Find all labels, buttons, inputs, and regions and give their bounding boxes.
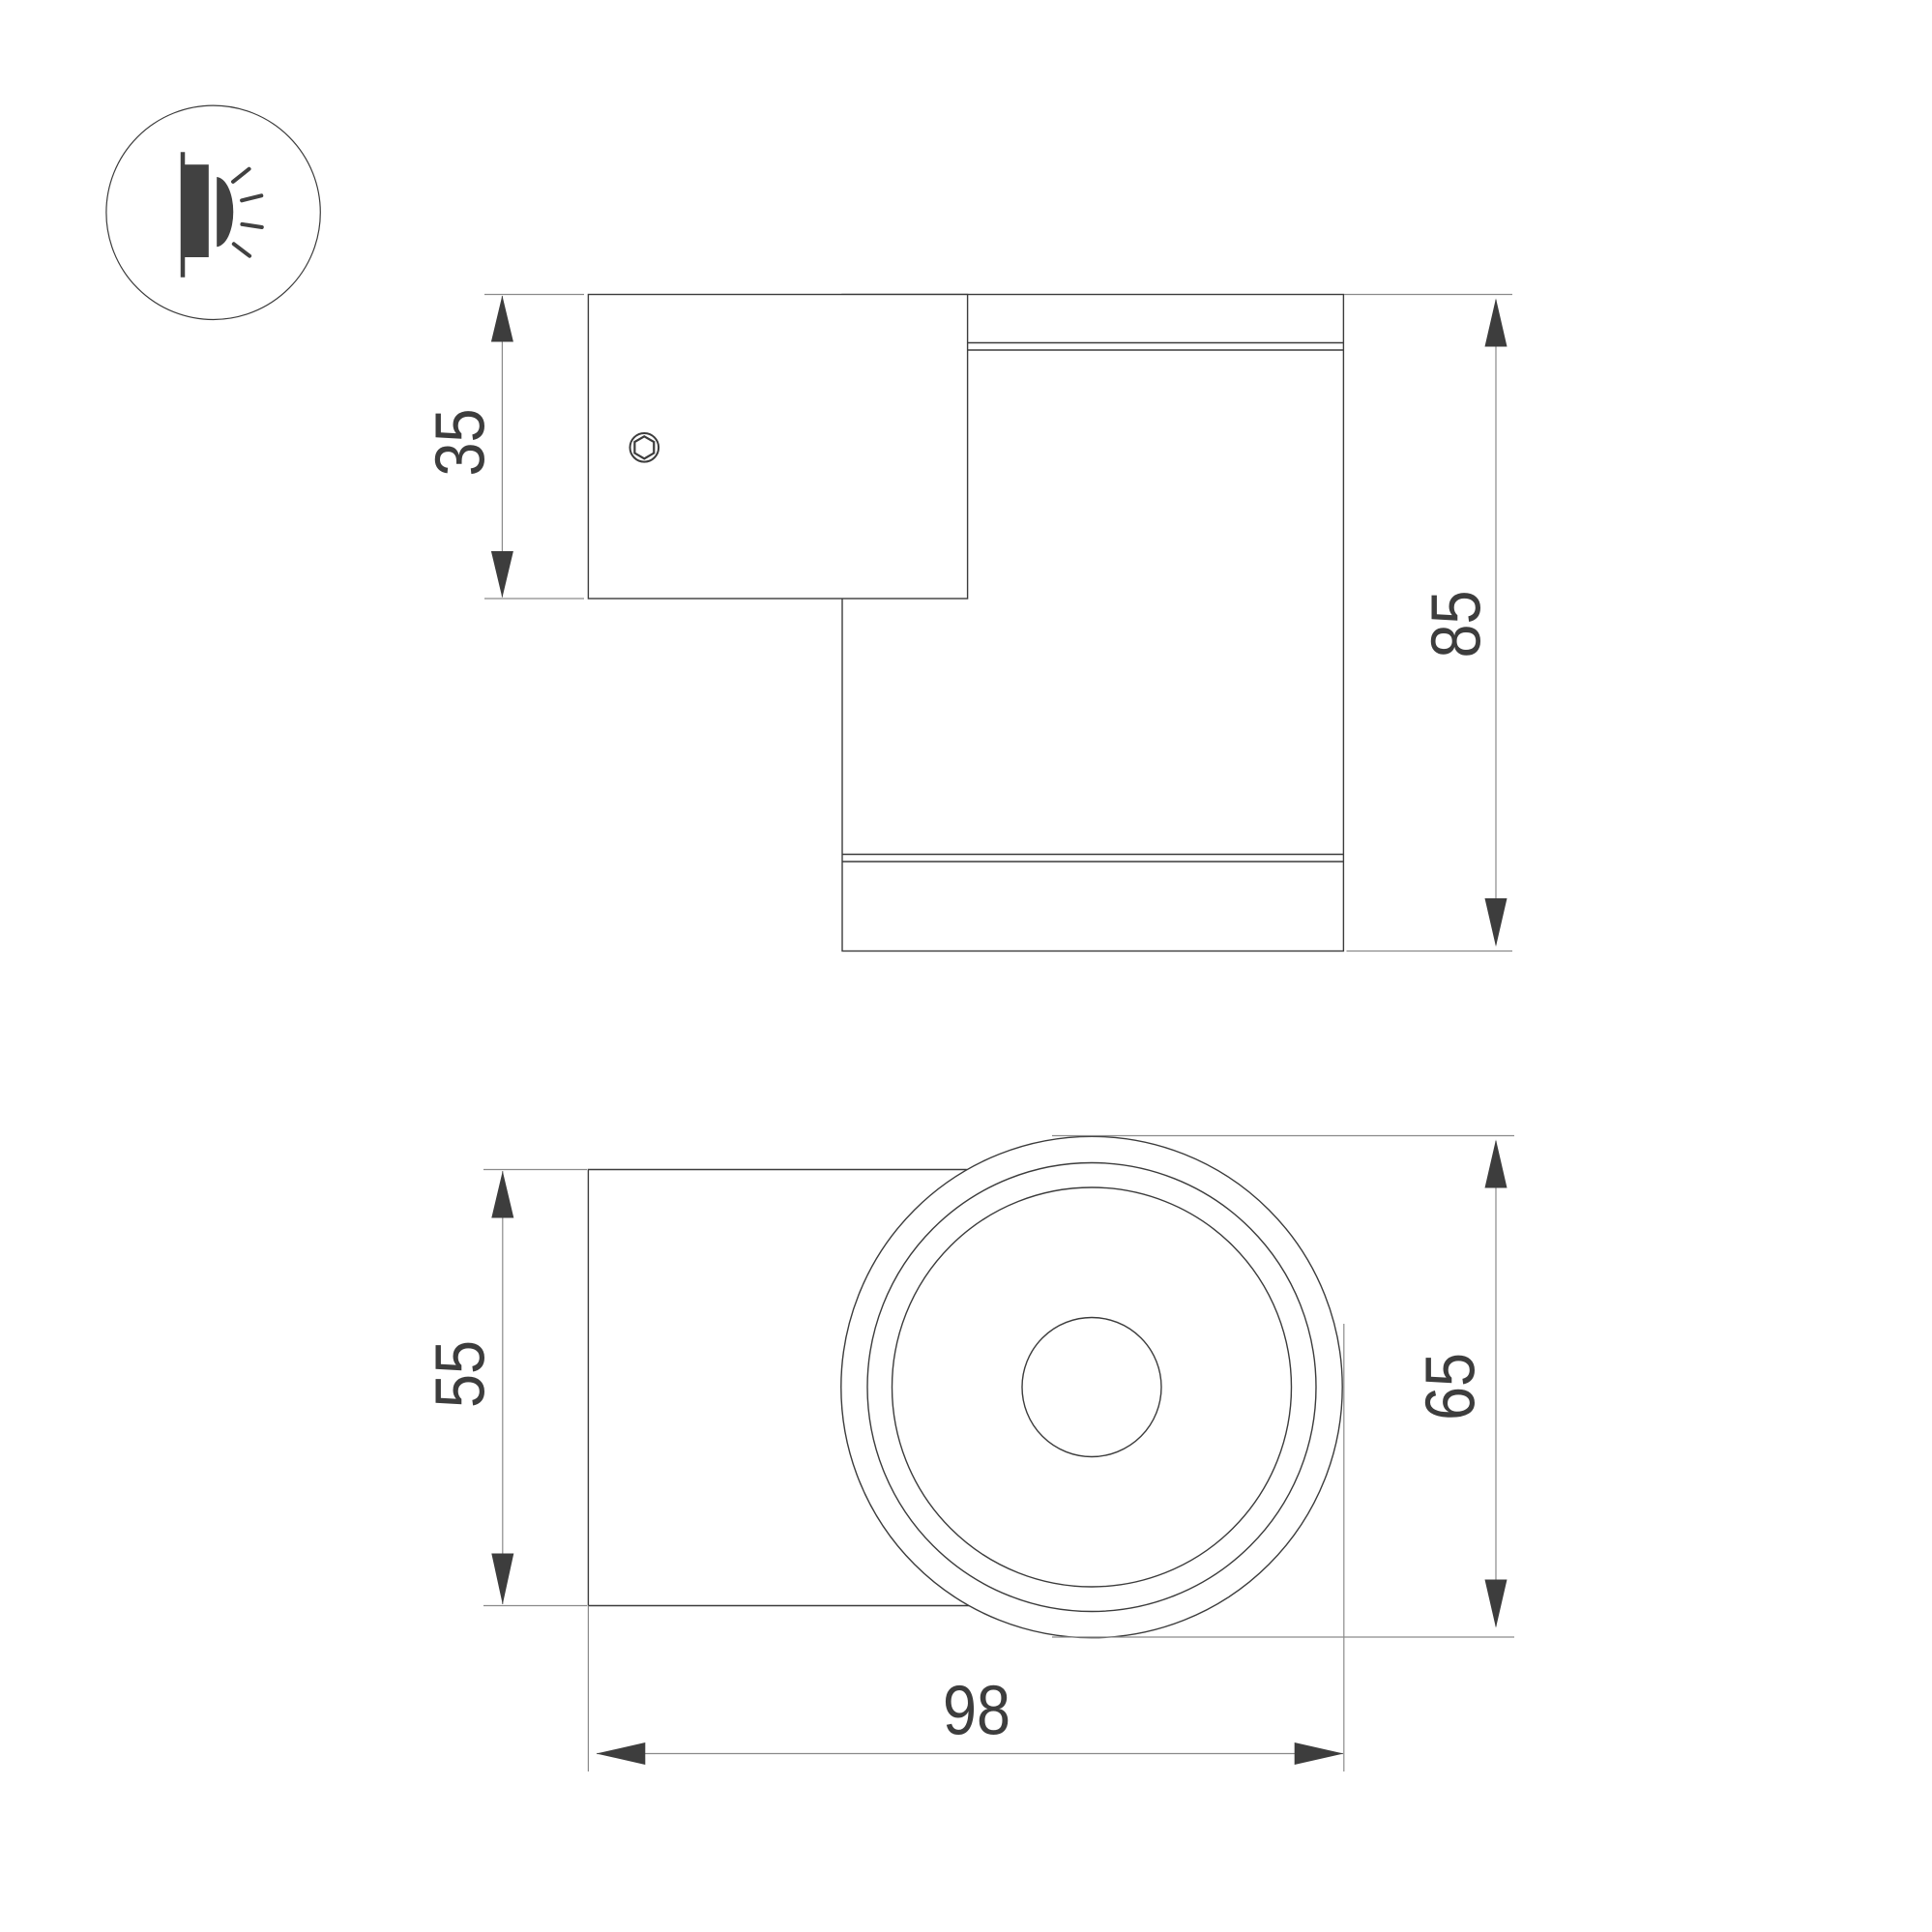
svg-text:55: 55 bbox=[422, 1340, 499, 1408]
svg-text:65: 65 bbox=[1412, 1353, 1489, 1420]
svg-text:98: 98 bbox=[943, 1673, 1010, 1750]
svg-text:35: 35 bbox=[422, 409, 499, 477]
svg-text:85: 85 bbox=[1418, 591, 1495, 659]
